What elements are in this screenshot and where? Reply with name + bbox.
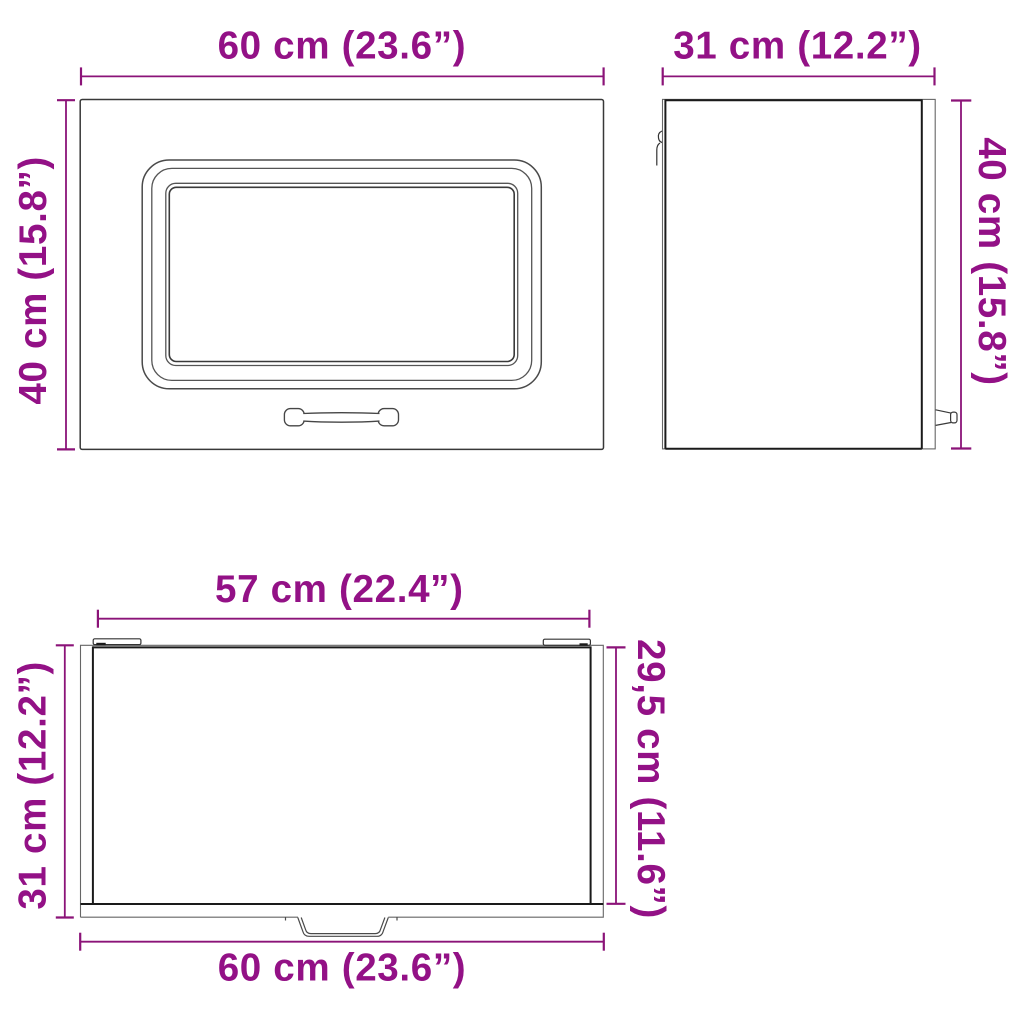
svg-text:57 cm (22.4”): 57 cm (22.4”) (215, 568, 464, 611)
svg-text:40 cm (15.8”): 40 cm (15.8”) (12, 156, 55, 405)
svg-text:31 cm (12.2”): 31 cm (12.2”) (673, 24, 922, 67)
svg-text:29,5 cm (11.6”): 29,5 cm (11.6”) (629, 639, 672, 919)
svg-text:40 cm (15.8”): 40 cm (15.8”) (970, 137, 1013, 386)
svg-text:31 cm (12.2”): 31 cm (12.2”) (12, 661, 55, 910)
svg-text:60 cm (23.6”): 60 cm (23.6”) (218, 947, 467, 990)
svg-text:60 cm (23.6”): 60 cm (23.6”) (218, 24, 467, 67)
